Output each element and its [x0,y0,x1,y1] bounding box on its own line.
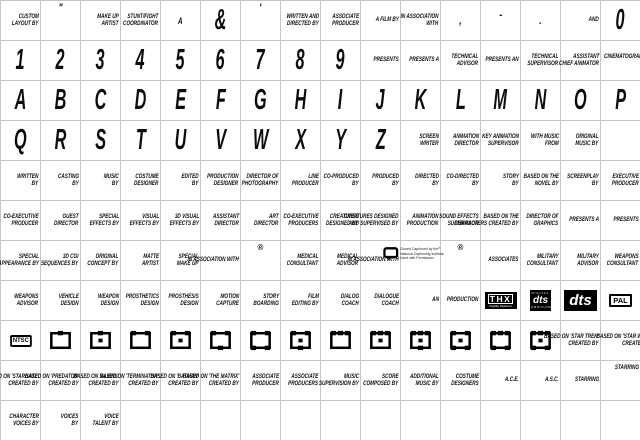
credit-glyph-cell[interactable]: BASED ON THECHARACTERS CREATED BY [481,201,521,241]
glyph-text: BY [72,180,79,187]
film-frame-icon [128,328,153,353]
glyph-text: PRESENTS A [409,56,439,63]
glyph-text: BASED ON 'THE MATRIX' [182,373,239,380]
dts-digital-surround-logo: DIGITALdtsSURROUND [530,290,551,311]
glyph-text: PRODUCER [291,180,318,187]
dts-logo-cell[interactable]: dts [561,281,601,321]
glyph-text: 3D VISUAL [174,213,199,220]
glyph-text: IN ASSOCIATION [401,13,439,20]
credit-glyph-cell[interactable]: KEY ANIMATIONSUPERVISOR [481,121,521,161]
character-glyph-cell[interactable]: A [161,1,201,41]
glyph-text: PRODUCERS [288,220,318,227]
credit-glyph-cell[interactable]: SCREENWRITER [401,121,441,161]
credit-glyph-cell[interactable]: TECHNICALADVISOR [441,41,481,81]
character-glyph: 7 [256,44,265,77]
character-glyph-cell[interactable]: N [521,81,561,121]
character-glyph: X [295,124,306,157]
credit-glyph-cell[interactable]: CUSTOMLAYOUT BY [1,1,41,41]
character-glyph-cell[interactable]: B [41,81,81,121]
credit-glyph-cell[interactable]: CINEMATOGRAPHYBY [601,41,640,81]
film-frame-glyph-cell[interactable] [121,321,161,361]
glyph-text: DIRECTOR [54,220,79,227]
empty-cell[interactable] [601,121,640,161]
glyph-text: MUSIC [104,173,119,180]
punctuation-glyph-cell[interactable]: - [481,1,521,41]
registered-mark-cell[interactable]: ® [441,241,481,281]
glyph-text: PRODUCTION [447,296,479,303]
character-glyph-cell[interactable]: Y [321,121,361,161]
film-frame-glyph-cell[interactable] [281,321,321,361]
film-frame-icon [168,328,193,353]
credit-glyph-cell[interactable]: ASSOCIATEPRODUCERS [281,361,321,401]
glyph-text: ARTIST [101,20,118,27]
credit-glyph-cell[interactable]: PRESENTS [601,201,640,241]
character-glyph: E [175,84,186,117]
credit-glyph-cell[interactable]: A.S.C. [521,361,561,401]
glyph-text: BY [352,180,359,187]
credit-glyph-cell[interactable]: GUESTDIRECTOR [41,201,81,241]
credit-glyph-cell[interactable]: VOICETALENT BY [81,401,121,440]
glyph-text: MEDICAL [297,253,319,260]
glyph-text: DESIGNER [134,180,159,187]
glyph-text: WEAPON [98,293,119,300]
character-glyph: 5 [176,44,185,77]
character-glyph-cell[interactable]: S [81,121,121,161]
glyph-text: CONSULTANT [607,260,639,267]
glyph-text: COACH [381,300,399,307]
empty-cell[interactable] [241,401,281,440]
character-glyph-cell[interactable]: I [321,81,361,121]
credit-glyph-cell[interactable]: MAKE UPARTIST [81,1,121,41]
character-glyph-cell[interactable]: 5 [161,41,201,81]
credit-glyph-cell[interactable]: BASED ON 'THE MATRIX'CREATED BY [201,361,241,401]
credit-glyph-cell[interactable]: STUNT/FIGHTCOORDINATOR [121,1,161,41]
character-glyph-cell[interactable]: V [201,121,241,161]
glyph-text: TALENT BY [92,420,118,427]
credit-glyph-cell[interactable]: VEHICLEDESIGN [41,281,81,321]
credit-glyph-cell[interactable]: CO-EXECUTIVEPRODUCERS [281,201,321,241]
credit-glyph-cell[interactable]: MEDICALCONSULTANT [281,241,321,281]
glyph-text: EDITING BY [291,300,318,307]
character-glyph: U [175,124,187,157]
character-glyph-cell[interactable]: C [81,81,121,121]
glyph-text: CAPTURE [216,300,239,307]
credit-glyph-cell[interactable]: AN [401,281,441,321]
glyph-text: DESIGN [140,300,158,307]
character-glyph: J [376,84,385,117]
glyph-text: DIALOG [340,293,359,300]
punctuation-glyph: . [539,15,541,27]
credit-glyph-cell[interactable]: CASTINGBY [41,161,81,201]
glyph-text: CO-EXECUTIVE [283,213,318,220]
glyph-text: AND [588,16,598,23]
glyph-text: BY [192,180,199,187]
credit-glyph-cell[interactable]: CO-EXECUTIVEPRODUCER [1,201,41,241]
glyph-text: BASED ON THE [523,173,559,180]
glyph-text: PRODUCERS [288,380,318,387]
character-glyph-cell[interactable]: K [401,81,441,121]
credit-glyph-cell[interactable]: LINEPRODUCER [281,161,321,201]
credit-glyph-cell[interactable]: ORIGINALMUSIC BY [561,121,601,161]
glyph-text: PRESENTS A [569,216,599,223]
glyph-text: ARTIST [141,260,158,267]
credit-glyph-cell[interactable]: A FILM BY [361,1,401,41]
thx-logo-cell[interactable]: THXDigitally Mastered [481,281,521,321]
glyph-text: SCORE [382,373,399,380]
credit-glyph-cell[interactable]: EXECUTIVEPRODUCER [601,161,640,201]
glyph-text: VOICES BY [13,420,39,427]
glyph-text: LAYOUT BY [12,20,39,27]
credit-glyph-cell[interactable]: ARTDIRECTOR [241,201,281,241]
credit-glyph-cell[interactable]: STORYBY [481,161,521,201]
credit-glyph-cell[interactable]: ADDITIONALMUSIC BY [401,361,441,401]
glyph-text: APPEARANCE BY [0,260,39,267]
glyph-text: WITH MUSIC [530,133,559,140]
glyph-text: STUNT/FIGHT [128,13,159,20]
punctuation-glyph: , [459,15,461,27]
glyph-text: BOARDING [253,300,279,307]
film-frame-icon [408,328,433,353]
glyph-text: DIRECTOR [254,220,279,227]
credit-glyph-cell[interactable]: ANIMATIONDIRECTOR [441,121,481,161]
credit-glyph-cell[interactable]: ORIGINALCONCEPT BY [81,241,121,281]
empty-cell[interactable] [281,401,321,440]
credit-glyph-cell[interactable]: WEAPONDESIGN [81,281,121,321]
glyph-text: DIRECTOR OF [246,173,279,180]
credit-glyph-cell[interactable]: CHARACTERVOICES BY [1,401,41,440]
credit-glyph-cell[interactable]: AND [561,1,601,41]
credit-glyph-cell[interactable]: COSTUMEDESIGNERS [441,361,481,401]
glyph-text: PRESENTS [613,216,639,223]
empty-cell[interactable] [361,401,401,440]
credit-glyph-cell[interactable]: ANIMATIONPRODUCTION [401,201,441,241]
glyph-text: CO-PRODUCED [323,173,359,180]
credit-glyph-cell[interactable]: PROSTHETICSDESIGN [121,281,161,321]
credit-glyph-cell[interactable]: DIRECTEDBY [401,161,441,201]
character-glyph-cell[interactable]: 3 [81,41,121,81]
glyph-text: FROM [544,140,558,147]
character-glyph: W [253,124,268,157]
glyph-text: BY [32,180,39,187]
empty-cell[interactable] [561,401,601,440]
glyph-text: DIRECTOR [214,220,239,227]
glyph-text: EDITED [181,173,199,180]
credit-glyph-cell[interactable]: MUSICSUPERVISION BY [321,361,361,401]
glyph-text: ANIMATION [452,133,479,140]
credit-glyph-cell[interactable]: MATTEARTIST [121,241,161,281]
character-glyph-cell[interactable]: D [121,81,161,121]
character-glyph-cell[interactable]: T [121,121,161,161]
character-glyph-cell[interactable]: E [161,81,201,121]
glyph-text: ANIMATION [412,213,439,220]
glyph-text: DESIGN [180,300,198,307]
credit-glyph-cell[interactable]: DIRECTOR OFGRAPHICS [521,201,561,241]
film-frame-glyph-cell[interactable] [361,321,401,361]
glyph-text: KEY ANIMATION [482,133,519,140]
glyph-text: WRITTEN [17,173,39,180]
character-glyph-cell[interactable]: 2 [41,41,81,81]
glyph-text: ASSOCIATE [332,13,359,20]
character-glyph-cell[interactable]: H [281,81,321,121]
credit-glyph-cell[interactable]: ASSISTANTCHIEF ANIMATOR [561,41,601,81]
glyph-text: CO-DIRECTED [446,173,479,180]
glyph-text: CHARACTER [9,413,39,420]
punctuation-glyph: ' [259,1,261,14]
credit-glyph-cell[interactable]: VISUALEFFECTS BY [121,201,161,241]
credit-glyph-cell[interactable]: PRESENTS [361,41,401,81]
credit-glyph-cell[interactable]: CREATURES DESIGNEDAND SUPERVISED BY [361,201,401,241]
empty-cell[interactable] [401,401,441,440]
credit-glyph-cell[interactable]: TECHNICALSUPERVISOR [521,41,561,81]
glyph-text: VEHICLE [58,293,79,300]
credit-glyph-cell[interactable]: PRESENTS A [401,41,441,81]
character-glyph: 4 [136,44,145,77]
character-glyph-cell[interactable]: J [361,81,401,121]
character-glyph: Y [335,124,346,157]
registered-trademark-glyph: ® [458,241,464,252]
empty-cell[interactable] [521,401,561,440]
punctuation-glyph-cell[interactable]: . [521,1,561,41]
film-frame-glyph-cell[interactable] [441,321,481,361]
character-glyph: Z [376,124,386,157]
character-glyph-cell[interactable]: M [481,81,521,121]
character-glyph-cell[interactable]: R [41,121,81,161]
glyph-text: LINE [308,173,319,180]
character-glyph-cell[interactable]: O [561,81,601,121]
character-glyph-cell[interactable]: A [1,81,41,121]
credit-glyph-cell[interactable]: ASSISTANTDIRECTOR [201,201,241,241]
credit-glyph-cell[interactable]: BASED ON 'STAR WARS'CREATED BY [601,321,640,361]
credit-glyph-cell[interactable]: WEAPONSCONSULTANT [601,241,640,281]
glyph-text: BASED ON THE [483,213,519,220]
glyph-text: A FILM BY [375,16,399,23]
glyph-text: GUEST [62,213,78,220]
empty-cell[interactable] [481,401,521,440]
glyph-text: ADVISOR [577,260,599,267]
credit-glyph-cell[interactable]: SPECIALAPPEARANCE BY [1,241,41,281]
glyph-text: CREATURES DESIGNED [344,213,399,220]
glyph-text: PROSTHETICS [125,293,159,300]
film-frame-icon [368,328,393,353]
character-glyph: K [415,84,427,117]
glyph-text: SUPERVISOR [528,60,559,67]
credit-glyph-cell[interactable]: WRITTENBY [1,161,41,201]
glyph-text: MILITARY [537,253,559,260]
glyph-text: ORIGINAL [96,253,119,260]
character-glyph: 2 [56,44,65,77]
credit-glyph-cell[interactable]: PRODUCTION [441,281,481,321]
character-glyph-cell[interactable]: Q [1,121,41,161]
credit-glyph-cell[interactable]: SPECIALEFFECTS BY [81,201,121,241]
ntsc-logo-cell[interactable]: NTSC [1,321,41,361]
film-frame-icon [488,328,513,353]
character-glyph-cell[interactable]: 0 [601,1,640,41]
character-glyph-cell[interactable]: X [281,121,321,161]
credit-glyph-cell[interactable]: BASED ON THENOVEL BY [521,161,561,201]
film-frame-glyph-cell[interactable] [481,321,521,361]
credit-glyph-cell[interactable]: STARRING [561,361,601,401]
credit-glyph-cell[interactable]: STORYBOARDING [241,281,281,321]
credit-glyph-cell[interactable]: A.C.E. [481,361,521,401]
closed-caption-glyph-cell[interactable]: Closed Captioned by the®National Caption… [401,241,441,281]
film-frame-icon [288,328,313,353]
glyph-text: MUSIC BY [415,380,438,387]
character-glyph: S [95,124,106,157]
credit-glyph-cell[interactable]: CO-DIRECTEDBY [441,161,481,201]
credit-glyph-cell[interactable]: STARRING [601,361,640,401]
character-glyph: 0 [616,4,625,37]
credit-glyph-cell[interactable]: 3D CGISEQUENCES BY [41,241,81,281]
glyph-text: STARRING [574,376,598,383]
character-glyph-cell[interactable]: P [601,81,640,121]
character-glyph-cell[interactable]: Z [361,121,401,161]
character-glyph-cell[interactable]: 9 [321,41,361,81]
glyph-text: WRITTEN AND [286,13,319,20]
glyph-text: WEAPONS [14,293,39,300]
character-glyph-cell[interactable]: G [241,81,281,121]
punctuation-glyph-cell[interactable]: " [41,1,81,41]
credit-glyph-cell[interactable]: PRODUCTIONDESIGNER [201,161,241,201]
credit-glyph-cell[interactable]: IN ASSOCIATION WITH [201,241,241,281]
credit-glyph-cell[interactable]: PRODUCEDBY [361,161,401,201]
glyph-text: PRODUCTION [407,220,439,227]
credit-glyph-cell[interactable]: SCORECOMPOSED BY [361,361,401,401]
glyph-text: A.C.E. [505,376,519,383]
credit-glyph-cell[interactable]: CO-PRODUCEDBY [321,161,361,201]
character-glyph-cell[interactable]: U [161,121,201,161]
credit-glyph-cell[interactable]: SCREENPLAYBY [561,161,601,201]
credit-glyph-cell[interactable]: VOICESBY [41,401,81,440]
glyph-text: VISUAL [141,213,159,220]
font-glyph-map: CUSTOMLAYOUT BY"MAKE UPARTISTSTUNT/FIGHT… [0,0,640,440]
credit-glyph-cell[interactable]: WEAPONSADVISOR [1,281,41,321]
punctuation-glyph-cell[interactable]: , [441,1,481,41]
credit-glyph-cell[interactable]: WRITTEN ANDDIRECTED BY [281,1,321,41]
glyph-text: SUPERVISION BY [318,380,358,387]
credit-glyph-cell[interactable]: MILITARYADVISOR [561,241,601,281]
glyph-text: PROSTHESIS [168,293,199,300]
character-glyph-cell[interactable]: 4 [121,41,161,81]
credit-glyph-cell[interactable]: DIRECTOR OFPHOTOGRAPHY [241,161,281,201]
glyph-text: CONCEPT BY [88,260,119,267]
film-frame-glyph-cell[interactable] [321,321,361,361]
credit-glyph-cell[interactable]: EDITEDBY [161,161,201,201]
character-glyph: Q [14,124,27,157]
glyph-text: COACH [341,300,359,307]
glyph-text: SUPERVISOR [488,140,519,147]
character-glyph-cell[interactable]: 6 [201,41,241,81]
registered-mark-cell[interactable]: ® [241,241,281,281]
glyph-text: A.S.C. [545,376,559,383]
glyph-text: SEQUENCES BY [41,260,79,267]
credit-glyph-cell[interactable]: ASSOCIATEPRODUCER [241,361,281,401]
glyph-text: SCREEN [419,133,439,140]
credit-glyph-cell[interactable]: WITH MUSICFROM [521,121,561,161]
empty-cell[interactable] [601,401,640,440]
glyph-text: DIRECTED BY [287,20,319,27]
empty-cell[interactable] [321,401,361,440]
glyph-text: ASSOCIATE [292,373,319,380]
glyph-text: ADVISOR [17,300,39,307]
film-frame-glyph-cell[interactable] [201,321,241,361]
character-glyph-cell[interactable]: W [241,121,281,161]
ntsc-logo: NTSC [10,335,31,347]
empty-cell[interactable] [201,401,241,440]
film-frame-glyph-cell[interactable] [401,321,441,361]
glyph-text: EFFECTS BY [89,220,118,227]
character-glyph-cell[interactable]: L [441,81,481,121]
character-glyph-cell[interactable]: 1 [1,41,41,81]
glyph-text: BASED ON 'STAR WARS' [597,333,640,340]
character-glyph: O [574,84,587,117]
glyph-text: AN [432,296,439,303]
credit-glyph-cell[interactable]: PROSTHESISDESIGN [161,281,201,321]
punctuation-glyph: " [58,1,62,14]
glyph-text: DESIGN [60,300,78,307]
credit-glyph-cell[interactable]: MOTIONCAPTURE [201,281,241,321]
credit-glyph-cell[interactable]: IN ASSOCIATIONWITH [401,1,441,41]
glyph-text: BY [472,180,479,187]
glyph-grid: CUSTOMLAYOUT BY"MAKE UPARTISTSTUNT/FIGHT… [0,0,640,440]
closed-caption-icon [383,247,399,261]
credit-glyph-cell[interactable]: ASSOCIATEPRODUCER [321,1,361,41]
glyph-text: SPECIAL [98,213,119,220]
character-glyph-cell[interactable]: F [201,81,241,121]
glyph-text: ASSISTANT [212,213,239,220]
film-frame-glyph-cell[interactable] [161,321,201,361]
character-glyph: L [456,84,466,117]
credit-glyph-cell[interactable]: BASED ON 'STAR TREK'CREATED BY [561,321,601,361]
film-frame-glyph-cell[interactable] [241,321,281,361]
dts-digital-surround-logo-cell[interactable]: DIGITALdtsSURROUND [521,281,561,321]
glyph-text: CREATED BY [208,380,238,387]
character-glyph-cell[interactable]: 8 [281,41,321,81]
character-glyph-cell[interactable]: 7 [241,41,281,81]
film-frame-glyph-cell[interactable] [41,321,81,361]
character-glyph-cell[interactable]: & [201,1,241,41]
credit-glyph-cell[interactable]: MILITARYCONSULTANT [521,241,561,281]
glyph-text: ART [269,213,279,220]
glyph-text: BASED ON 'PREDATOR' [25,373,79,380]
punctuation-glyph: - [499,1,502,21]
glyph-text: STORY [503,173,519,180]
credit-glyph-cell[interactable]: COSTUMEDESIGNER [121,161,161,201]
film-frame-icon [208,328,233,353]
empty-cell[interactable] [441,401,481,440]
empty-cell[interactable] [161,401,201,440]
film-frame-icon [88,328,113,353]
credit-glyph-cell[interactable]: DIALOGCOACH [321,281,361,321]
credit-glyph-cell[interactable]: MUSICBY [81,161,121,201]
glyph-text: CONSULTANT [287,260,319,267]
credit-glyph-cell[interactable]: PRESENTS A [561,201,601,241]
film-frame-glyph-cell[interactable] [81,321,121,361]
credit-glyph-cell[interactable]: FILMEDITING BY [281,281,321,321]
glyph-text: MUSIC [344,373,359,380]
glyph-text: CONSULTANT [527,260,559,267]
punctuation-glyph-cell[interactable]: ' [241,1,281,41]
pal-logo-cell[interactable]: PAL [601,281,640,321]
glyph-text: PRODUCED [372,173,399,180]
credit-glyph-cell[interactable]: ASSOCIATES [481,241,521,281]
film-frame-icon [248,328,273,353]
credit-glyph-cell[interactable]: DIALOGUECOACH [361,281,401,321]
empty-cell[interactable] [121,401,161,440]
character-glyph: P [615,84,626,117]
credit-glyph-cell[interactable]: PRESENTS AN [481,41,521,81]
glyph-text: PRODUCTION [207,173,239,180]
credit-glyph-cell[interactable]: 3D VISUALEFFECTS BY [161,201,201,241]
